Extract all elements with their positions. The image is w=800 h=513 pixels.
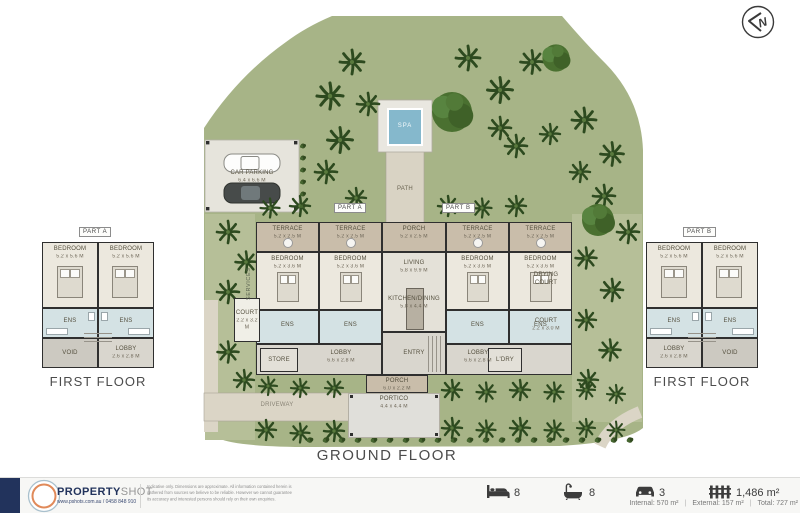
room-dims: 5.2 x 3.6 M xyxy=(260,264,314,270)
cars-icon xyxy=(634,484,656,499)
title-text: FIRST FLOOR xyxy=(50,374,147,389)
room-label-laundry: L'DRY xyxy=(488,357,522,365)
room-dims: 5.2 x 5.6 M xyxy=(102,254,150,260)
room-label-terrace: TERRACE5.2 x 2.5 M xyxy=(446,226,509,241)
room-name: PORCH xyxy=(366,378,428,386)
palm-tree-icon xyxy=(234,370,254,390)
palm-tree-icon xyxy=(545,421,564,440)
palm-tree-icon xyxy=(593,185,615,207)
room-name: LOBBY xyxy=(646,346,702,354)
room-dims: 2.6 x 2.8 M xyxy=(102,354,150,360)
brand-contact: www.pshots.com.au / 0458 848 910 xyxy=(57,499,136,505)
room-name: BEDROOM xyxy=(98,246,154,254)
room-name: DRIVEWAY xyxy=(261,402,294,408)
car-icon xyxy=(224,183,280,203)
palm-tree-icon xyxy=(576,310,596,330)
palm-tree-icon xyxy=(488,78,513,103)
palm-tree-icon xyxy=(256,420,276,440)
palm-tree-icon xyxy=(291,379,309,397)
room-label-ens: ENS xyxy=(98,318,154,326)
room-label-living: LIVING5.8 x 9.9 M xyxy=(382,260,446,275)
room-label-kitchen: KITCHEN/DINING5.8 x 4.4 M xyxy=(382,296,446,311)
room-name: VOID xyxy=(722,350,737,356)
room-label-ens: ENS xyxy=(446,322,509,330)
palm-tree-icon xyxy=(505,135,527,157)
room-label-drying-court: DRYINGCOURT xyxy=(524,272,568,287)
room-name: COURT xyxy=(524,280,568,288)
palm-tree-icon xyxy=(261,199,280,218)
car-parking-label: CAR PARKING6.4 x 6.6 M xyxy=(205,170,299,185)
palm-tree-icon xyxy=(442,418,462,438)
room-label-bedroom: BEDROOM5.2 x 5.6 M xyxy=(42,246,98,261)
palm-tree-icon xyxy=(456,46,480,70)
bath-icon xyxy=(562,483,584,500)
part-a-label: PART A xyxy=(79,227,111,237)
room-dims: 5.2 x 5.6 M xyxy=(706,254,754,260)
palm-tree-icon xyxy=(489,117,511,139)
compass-north-icon: N xyxy=(740,4,776,40)
room-label-terrace: TERRACE5.2 x 2.5 M xyxy=(256,226,319,241)
palm-tree-icon xyxy=(328,128,353,153)
baths-value: 8 xyxy=(589,487,595,499)
room-label-bedroom: BEDROOM5.2 x 5.6 M xyxy=(702,246,758,261)
room-name: TERRACE xyxy=(256,226,319,234)
palm-tree-icon xyxy=(572,108,596,132)
room-dims: 5.2 x 2.5 M xyxy=(260,234,314,240)
palm-tree-icon xyxy=(577,381,595,399)
room-name: BEDROOM xyxy=(319,256,382,264)
room-name: ENS xyxy=(471,322,484,328)
room-label-ens: ENS xyxy=(42,318,98,326)
room-label-court: COURT2.2 x 3.0 M xyxy=(524,318,568,333)
palm-tree-icon xyxy=(317,83,343,109)
room-label-store: STORE xyxy=(260,357,298,365)
room-label-portico: PORTICO4.4 x 4.4 M xyxy=(348,396,440,411)
room-name: ENS xyxy=(344,322,357,328)
disclaimer: Indicative only. Dimensions are approxim… xyxy=(147,484,308,503)
room-label-porch: PORCH5.2 x 2.5 M xyxy=(382,226,446,241)
room-name: BEDROOM xyxy=(446,256,509,264)
room-dims: 2.2 x 3.2 M xyxy=(234,318,260,331)
beds-count: 8 xyxy=(514,487,520,499)
room-name: BEDROOM xyxy=(42,246,98,254)
cars-count: 3 xyxy=(659,487,665,499)
total-area: Total: 727 m² xyxy=(758,500,798,507)
palm-tree-icon xyxy=(315,161,337,183)
room-name: VOID xyxy=(62,350,77,356)
room-dims: 5.2 x 3.6 M xyxy=(323,264,377,270)
palm-tree-icon xyxy=(545,383,564,402)
palm-tree-icon xyxy=(607,385,625,403)
room-name: PORCH xyxy=(382,226,446,234)
palm-tree-icon xyxy=(477,383,496,402)
first-floor-title: FIRST FLOOR xyxy=(28,374,168,389)
footer-accent-block xyxy=(0,478,20,513)
path-label: PATH xyxy=(386,186,424,194)
room-label-ens: ENS xyxy=(256,322,319,330)
room-dims: 5.2 x 2.5 M xyxy=(450,234,504,240)
palm-tree-icon xyxy=(617,221,639,243)
room-dims: 5.2 x 2.5 M xyxy=(513,234,567,240)
room-dims: 5.2 x 2.5 M xyxy=(386,234,441,240)
hedge-bush-icon xyxy=(627,437,634,443)
palm-tree-icon xyxy=(600,340,621,361)
room-label-lobby: LOBBY2.6 x 2.8 M xyxy=(646,346,702,361)
room-name: ENS xyxy=(64,318,77,324)
room-label-bedroom: BEDROOM5.2 x 5.6 M xyxy=(98,246,154,261)
palm-tree-icon xyxy=(576,248,597,269)
part-a-text: PART A xyxy=(338,205,362,211)
room-name: COURT xyxy=(524,318,568,326)
palm-tree-icon xyxy=(290,196,310,216)
room-label-terrace: TERRACE5.2 x 2.5 M xyxy=(509,226,572,241)
room-dims: 2.2 x 3.0 M xyxy=(527,326,565,332)
room-dims: 6.4 x 6.6 M xyxy=(212,178,293,184)
room-dims: 5.2 x 2.5 M xyxy=(323,234,377,240)
room-name: ENS xyxy=(724,318,737,324)
room-label-terrace: TERRACE5.2 x 2.5 M xyxy=(319,226,382,241)
title-text: GROUND FLOOR xyxy=(317,447,458,464)
room-name: BEDROOM xyxy=(509,256,572,264)
palm-tree-icon xyxy=(577,419,595,437)
room-dims: 6.0 x 2.2 M xyxy=(370,386,423,392)
room-label-bedroom: BEDROOM5.2 x 3.6 M xyxy=(446,256,509,271)
part-b-label: PART B xyxy=(442,203,475,213)
baths-count: 8 xyxy=(589,487,595,499)
room-dims: 6.6 x 2.8 M xyxy=(306,358,377,364)
part-b-text: PART B xyxy=(446,205,471,211)
room-label-lobby: LOBBY6.6 x 2.8 M xyxy=(300,350,382,365)
room-dims: 5.2 x 3.6 M xyxy=(450,264,504,270)
room-label-entry: ENTRY xyxy=(382,350,446,358)
room-name: ENS xyxy=(668,318,681,324)
palm-tree-icon xyxy=(340,50,364,74)
floorplan-page: N PART A PART B TERRACE5.2 x 2.5 M TERRA… xyxy=(0,0,800,513)
room-name: STORE xyxy=(268,357,290,363)
part-b-label: PART B xyxy=(683,227,716,237)
room-name: LOBBY xyxy=(98,346,154,354)
palm-tree-icon xyxy=(540,124,560,144)
room-label-bedroom: BEDROOM5.2 x 5.6 M xyxy=(646,246,702,261)
room-name: TERRACE xyxy=(319,226,382,234)
room-name: TERRACE xyxy=(509,226,572,234)
room-dims: 5.2 x 5.6 M xyxy=(650,254,698,260)
palm-tree-icon xyxy=(510,380,530,400)
palm-tree-icon xyxy=(259,377,277,395)
room-name: ENS xyxy=(120,318,133,324)
room-label-ens: ENS xyxy=(319,322,382,330)
brand-name: PROPERTYSHOT xyxy=(57,486,153,498)
room-dims: 5.2 x 3.6 M xyxy=(513,264,567,270)
palm-tree-icon xyxy=(473,199,492,218)
room-label-ens: ENS xyxy=(702,318,758,326)
ground-floor-title: GROUND FLOOR xyxy=(312,447,462,464)
palm-tree-icon xyxy=(477,421,496,440)
palm-tree-icon xyxy=(608,422,625,439)
part-b-text: PART B xyxy=(687,229,712,235)
footer-divider xyxy=(140,484,141,508)
land-area: 1,486 m² xyxy=(736,487,779,499)
room-dims: 5.8 x 9.9 M xyxy=(386,268,441,274)
room-name: PATH xyxy=(397,186,413,192)
internal-area: Internal: 570 m² xyxy=(629,500,678,507)
room-name: COURT xyxy=(232,310,262,318)
palm-tree-icon xyxy=(357,93,379,115)
palm-tree-icon xyxy=(601,143,624,166)
cars-value: 3 xyxy=(659,487,665,499)
part-a-label: PART A xyxy=(334,203,366,213)
room-label-bedroom: BEDROOM5.2 x 3.6 M xyxy=(509,256,572,271)
room-name: SERVICES xyxy=(246,267,252,300)
area-summary: Internal: 570 m²|External: 157 m²|Total:… xyxy=(560,500,798,507)
palm-tree-icon xyxy=(442,380,462,400)
driveway-label: DRIVEWAY xyxy=(204,402,350,410)
bed-icon xyxy=(486,485,510,499)
room-name: TERRACE xyxy=(446,226,509,234)
room-label-bedroom: BEDROOM5.2 x 3.6 M xyxy=(256,256,319,271)
room-name: CAR PARKING xyxy=(205,170,299,178)
palm-tree-icon xyxy=(218,342,239,363)
room-name: LIVING xyxy=(382,260,446,268)
palm-tree-icon xyxy=(506,196,526,216)
room-name: ENTRY xyxy=(403,350,424,356)
room-name: BEDROOM xyxy=(702,246,758,254)
palm-tree-icon xyxy=(510,418,530,438)
separator: | xyxy=(750,500,752,507)
room-dims: 5.2 x 5.6 M xyxy=(46,254,94,260)
palm-tree-icon xyxy=(570,162,590,182)
room-dims: 4.4 x 4.4 M xyxy=(354,404,433,410)
palm-tree-icon xyxy=(521,51,544,74)
land-area-value: 1,486 m² xyxy=(736,487,779,499)
palm-tree-icon xyxy=(217,221,239,243)
room-name: BEDROOM xyxy=(646,246,702,254)
disclaimer-line: its accuracy and interested persons shou… xyxy=(147,496,308,502)
room-name: LOBBY xyxy=(300,350,382,358)
spa-label: SPA xyxy=(388,123,422,131)
room-name: BEDROOM xyxy=(256,256,319,264)
room-name: DRYING xyxy=(524,272,568,280)
room-dims: 2.6 x 2.8 M xyxy=(650,354,698,360)
room-name: PORTICO xyxy=(348,396,440,404)
separator: | xyxy=(685,500,687,507)
room-label-court: COURT2.2 x 3.2 M xyxy=(232,310,262,333)
external-area: External: 157 m² xyxy=(692,500,743,507)
room-name: SPA xyxy=(398,123,413,129)
palm-tree-icon xyxy=(325,379,343,397)
room-name: ENS xyxy=(281,322,294,328)
room-label-void: VOID xyxy=(702,350,758,358)
room-label-porch: PORCH6.0 x 2.2 M xyxy=(366,378,428,393)
propertyshot-logo-icon xyxy=(27,479,61,513)
brand-contact-text: www.pshots.com.au / 0458 848 910 xyxy=(57,499,136,505)
room-name: L'DRY xyxy=(496,357,514,363)
room-label-void: VOID xyxy=(42,350,98,358)
room-label-lobby: LOBBY2.6 x 2.8 M xyxy=(98,346,154,361)
palm-tree-icon xyxy=(291,424,310,443)
room-name: KITCHEN/DINING xyxy=(382,296,446,304)
first-floor-title: FIRST FLOOR xyxy=(632,374,772,389)
land-size-icon xyxy=(709,484,732,499)
disclaimer-line: gathered from sources we believe to be r… xyxy=(147,490,308,496)
room-label-ens: ENS xyxy=(646,318,702,326)
room-label-services: SERVICES xyxy=(246,258,252,300)
palm-tree-icon xyxy=(601,279,623,301)
part-a-text: PART A xyxy=(83,229,107,235)
room-label-bedroom: BEDROOM5.2 x 3.6 M xyxy=(319,256,382,271)
room-dims: 5.8 x 4.4 M xyxy=(386,304,441,310)
footer-bar: PROPERTYSHOT www.pshots.com.au / 0458 84… xyxy=(0,477,800,513)
brand-bold-text: PROPERTY xyxy=(57,486,121,498)
title-text: FIRST FLOOR xyxy=(654,374,751,389)
beds-value: 8 xyxy=(514,487,520,499)
